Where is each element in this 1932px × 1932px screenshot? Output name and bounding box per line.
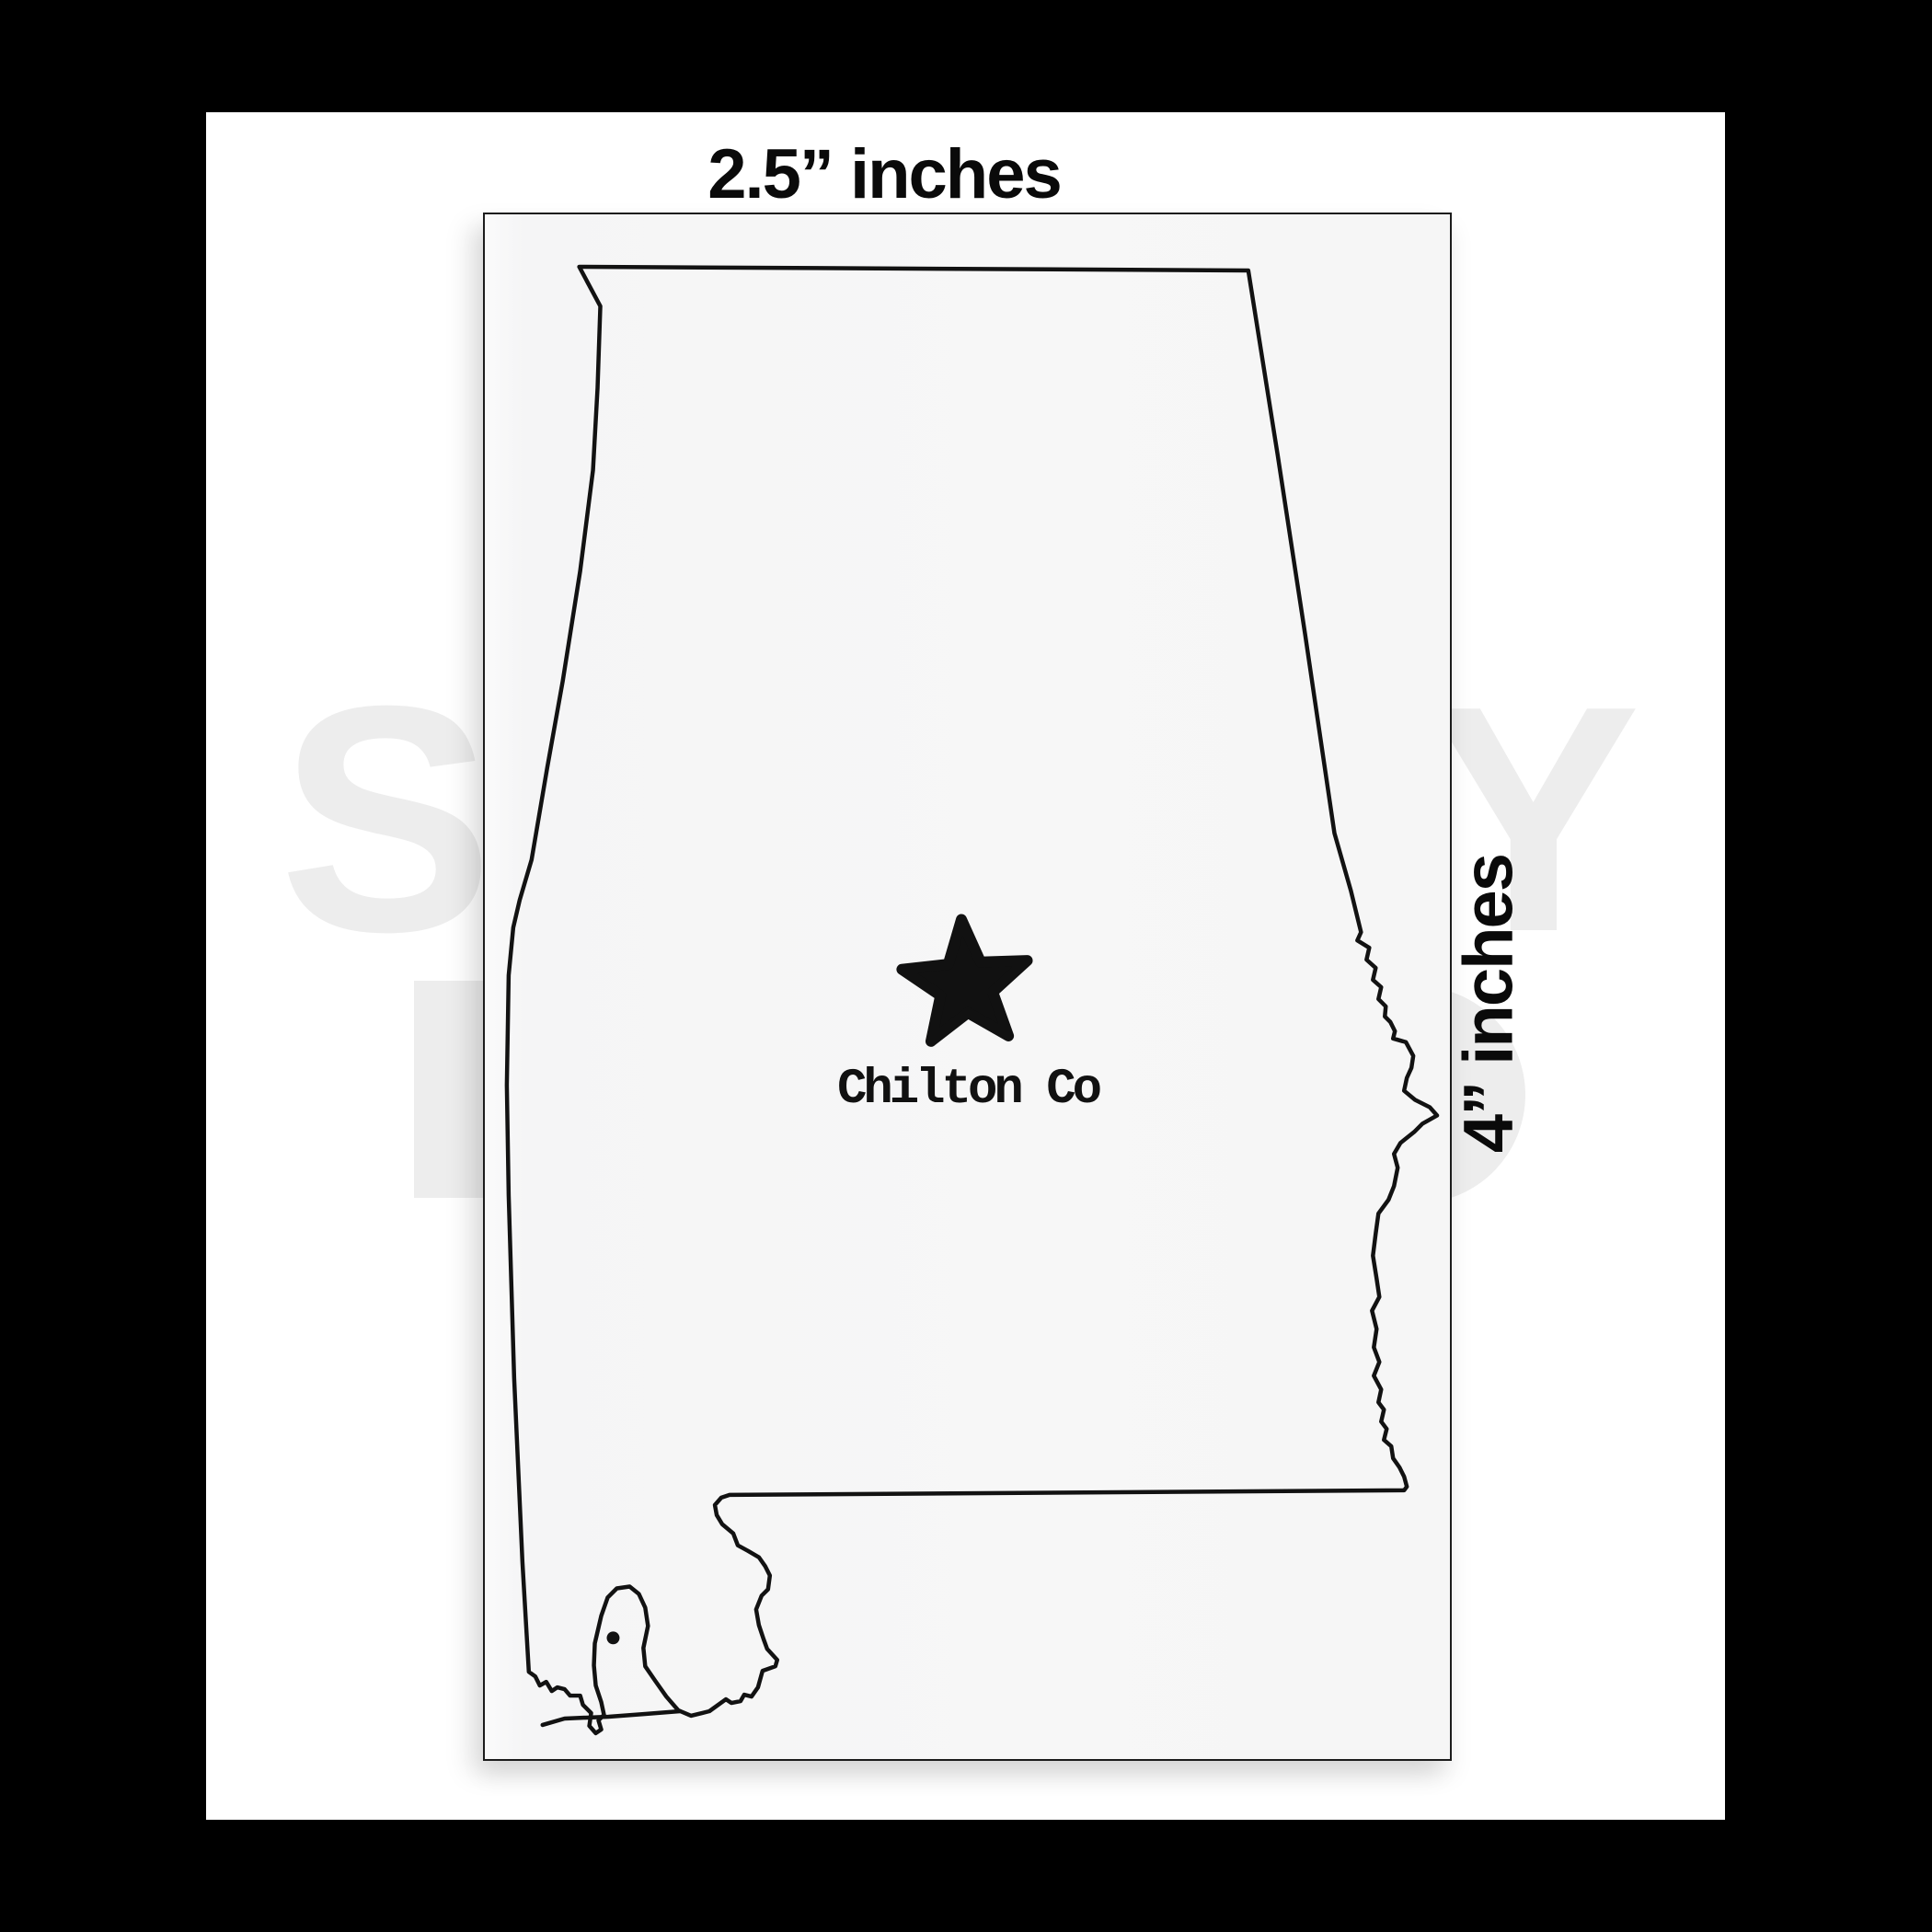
width-dimension-label: 2.5” inches	[707, 134, 1061, 214]
height-dimension-label: 4” inches	[1449, 855, 1529, 1153]
alabama-outline-svg	[485, 214, 1450, 1759]
county-label: Chilton Co	[837, 1062, 1098, 1118]
bay-island-dot	[606, 1631, 619, 1644]
sticker: Chilton Co	[483, 213, 1452, 1761]
watermark-letter-s: S	[279, 659, 493, 981]
mockup-background: S Y Chilton Co 2.5” inches 4” inches	[206, 112, 1725, 1820]
product-image: S Y Chilton Co 2.5” inches 4” inches	[0, 0, 1932, 1932]
coast-spit-line	[543, 1711, 680, 1725]
star-icon	[902, 919, 1027, 1041]
